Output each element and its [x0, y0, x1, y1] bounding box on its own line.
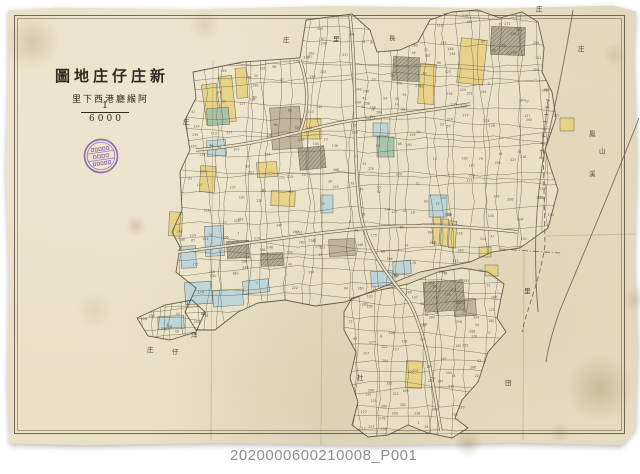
catalog-id: 2020000600210008_P001 [230, 447, 417, 464]
map-sheet-wrap: 圖地庄仔庄新 里下西港廳緱阿 1 6000 [0, 0, 640, 474]
map-sheet: 圖地庄仔庄新 里下西港廳緱阿 1 6000 [6, 5, 638, 446]
scale-denominator: 6000 [76, 114, 134, 124]
scale-bar [81, 112, 129, 113]
scan-background: 圖地庄仔庄新 里下西港廳緱阿 1 6000 103497318013714714… [0, 0, 640, 474]
map-scale: 1 6000 [76, 101, 134, 124]
map-title: 圖地庄仔庄新 [55, 65, 169, 86]
scale-numerator: 1 [76, 101, 134, 111]
